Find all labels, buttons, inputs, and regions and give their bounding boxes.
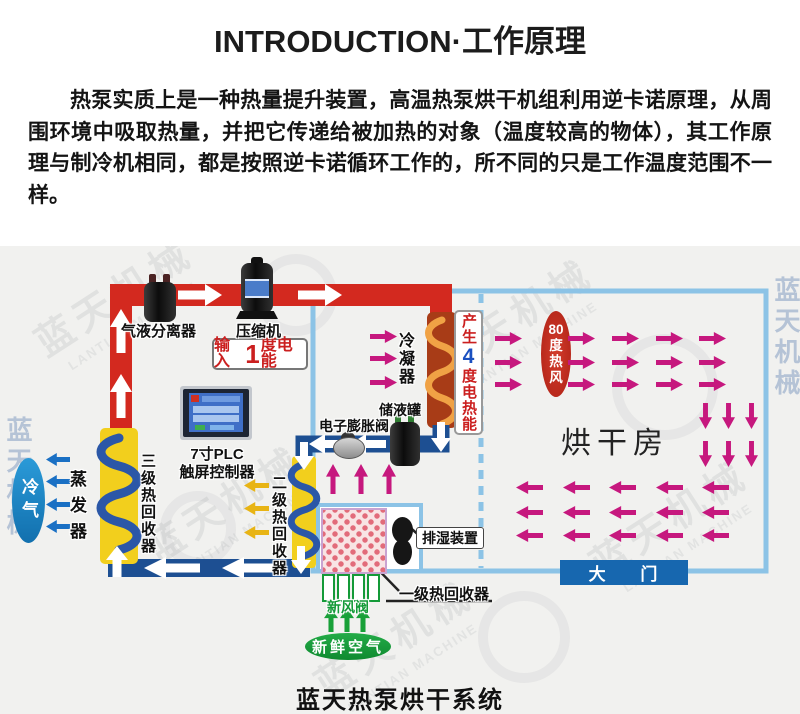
stage1-heat-recovery-box bbox=[321, 508, 387, 574]
plc-controller bbox=[180, 386, 252, 440]
compressor-label-plate bbox=[245, 279, 269, 298]
dehumidifier-label: 排湿装置 bbox=[416, 527, 484, 549]
hot-air-oval: 80 度 热 风 bbox=[541, 311, 571, 397]
evaporator-label: 蒸发器 bbox=[68, 458, 85, 560]
dehumidifier-lobe bbox=[393, 539, 412, 565]
system-diagram: 蓝天机械LANTIAN MACHINE 蓝天机械LANTIAN MACHINE … bbox=[0, 246, 800, 714]
plc-screen-data-row bbox=[193, 406, 239, 413]
stage3-label: 三级热回收器 bbox=[140, 442, 155, 566]
heat-output-value: 4 bbox=[463, 346, 475, 367]
valve-body bbox=[333, 437, 365, 459]
cold-air-oval: 冷气 bbox=[12, 458, 45, 543]
separator-body bbox=[144, 282, 176, 322]
gas-liquid-separator bbox=[144, 274, 176, 322]
page: INTRODUCTION·工作原理 热泵实质上是一种热量提升装置，高温热泵烘干机… bbox=[0, 16, 800, 714]
fresh-air-valve-label: 新风阀 bbox=[318, 597, 378, 617]
plc-screen-button bbox=[195, 425, 205, 430]
stage2-label: 二级热回收器 bbox=[271, 466, 286, 586]
separator-label: 气液分离器 bbox=[116, 320, 201, 341]
expansion-valve bbox=[333, 432, 363, 459]
compressor-unit bbox=[240, 257, 274, 319]
plc-screen-alarm-chip bbox=[191, 395, 199, 402]
fresh-air-oval: 新鲜空气 bbox=[305, 633, 391, 660]
compressor-label: 压缩机 bbox=[216, 320, 301, 341]
plc-screen-button bbox=[210, 425, 234, 430]
compressor-base bbox=[236, 311, 278, 319]
heat-output-prefix: 产生 bbox=[461, 313, 476, 345]
input-energy-value: 1 bbox=[245, 341, 259, 367]
dehumidifier-unit bbox=[392, 517, 413, 565]
input-energy-badge: 输入1度电能 bbox=[212, 338, 308, 370]
input-energy-prefix: 输入 bbox=[214, 338, 244, 370]
plc-label-line2: 触屏控制器 bbox=[169, 461, 265, 482]
condenser-label: 冷凝器 bbox=[396, 330, 412, 388]
plc-screen-menu-row bbox=[202, 396, 240, 402]
heat-output-badge: 产生4度电热能 bbox=[454, 310, 483, 435]
page-title: INTRODUCTION·工作原理 bbox=[0, 16, 800, 61]
pipes-layer bbox=[0, 246, 800, 714]
intro-paragraph: 热泵实质上是一种热量提升装置，高温热泵烘干机组利用逆卡诺原理，从周围环境中吸取热… bbox=[28, 85, 772, 211]
heat-output-suffix: 度电热能 bbox=[461, 368, 476, 432]
drying-room-label: 烘干房 bbox=[550, 418, 680, 462]
diagram-caption: 蓝天热泵烘干系统 bbox=[0, 680, 800, 714]
plc-screen[interactable] bbox=[189, 393, 243, 432]
door-bar: 大 门 bbox=[560, 560, 688, 585]
input-energy-suffix: 度电能 bbox=[261, 338, 306, 370]
plc-screen-data-row bbox=[193, 415, 239, 422]
stage1-label: 一级热回收器 bbox=[394, 583, 494, 604]
expansion-valve-label: 电子膨胀阀 bbox=[310, 416, 398, 436]
